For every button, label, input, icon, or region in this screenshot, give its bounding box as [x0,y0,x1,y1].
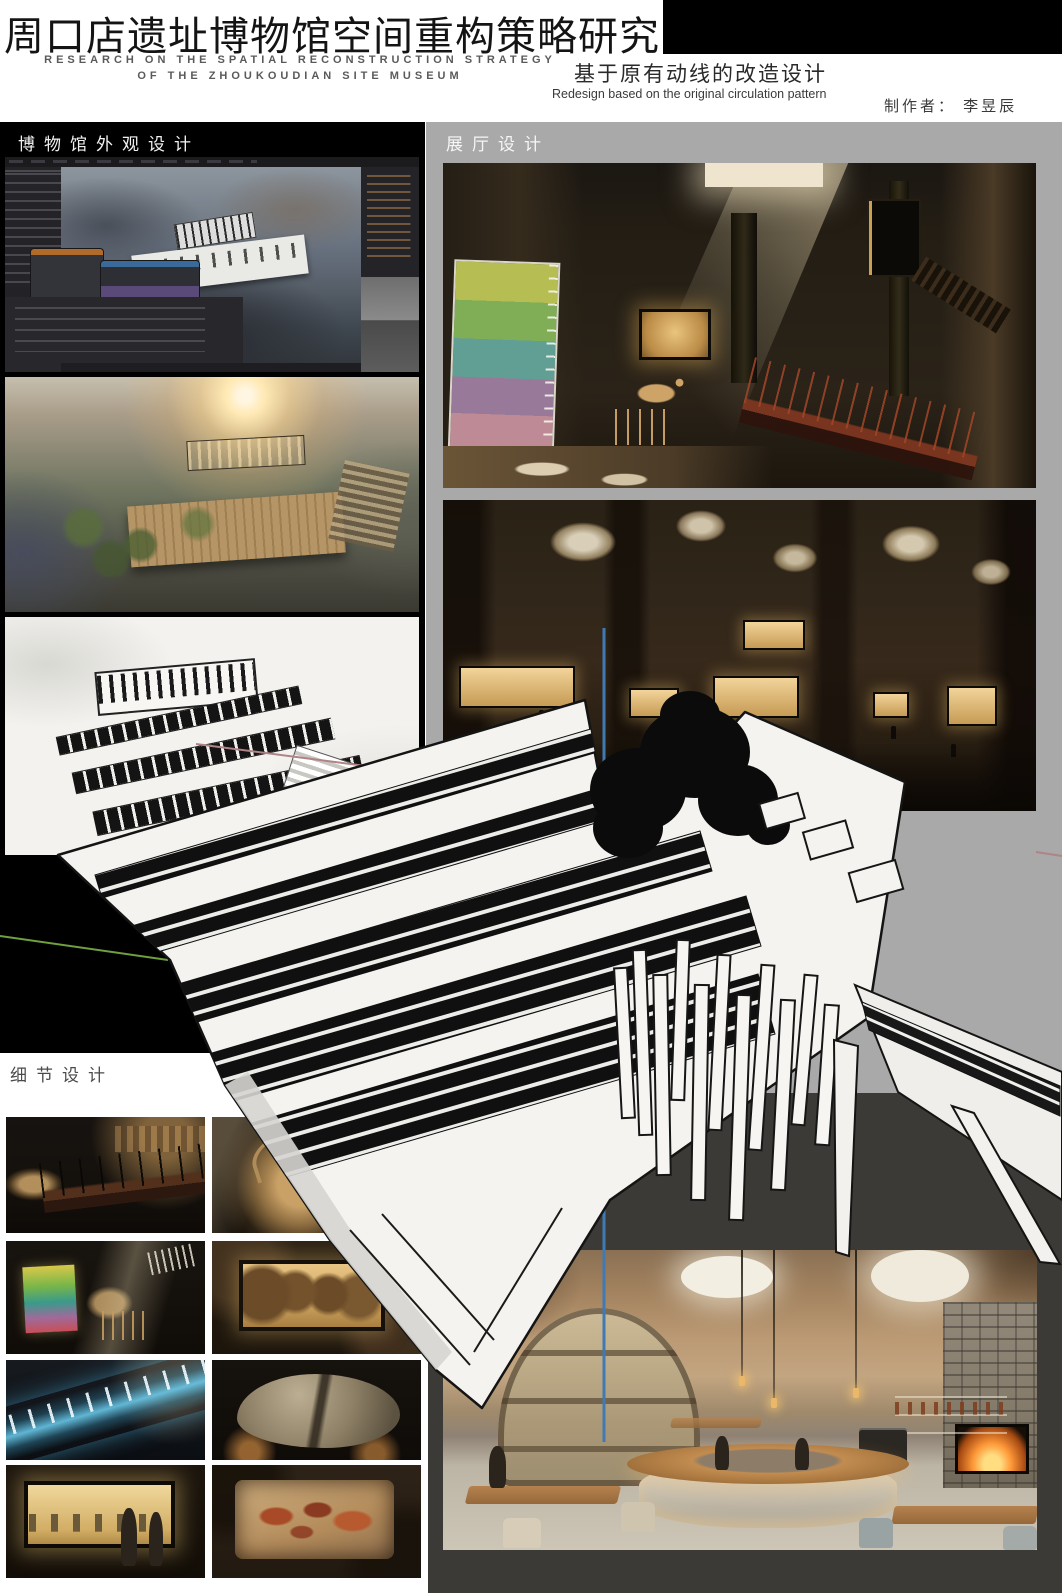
skull-display-case [459,666,575,708]
pendant-light [741,1250,743,1378]
blender-outliner-panel [361,167,419,277]
projected-evolution-timeline [6,1360,205,1460]
lit-display-case [639,309,711,360]
pendant-bulb [853,1388,859,1398]
excavation-bridge [39,1141,205,1227]
cave-painting-panel [235,1480,394,1559]
projected-art-wall [22,1265,77,1333]
blender-lower-panel [5,297,243,372]
deer-skeleton-legs [102,1311,146,1340]
pendant-bulb [739,1376,745,1386]
blender-preview-viewport [361,277,419,372]
cave-floor [443,743,1036,811]
dome-skylights [443,500,1036,640]
fossil-display-case [947,686,997,726]
render-greenery [38,506,266,577]
fossil-display-case [873,692,909,718]
detail-projection-deer-photo [6,1241,205,1354]
cafe-chair [1003,1526,1037,1550]
deer-skeleton-exhibit [609,369,695,445]
stratigraphy-map-banner [448,259,561,459]
blender-menubar [5,157,419,167]
cafe-table [670,1418,762,1428]
circular-bar-counter [627,1444,909,1484]
bar-shelves [895,1396,1007,1438]
detail-blue-timeline-photo [6,1360,205,1460]
header-black-bar [663,0,1062,54]
alcove-display-case [743,620,805,650]
section-label-exterior: 博物馆外观设计 [18,130,200,155]
figure-exhibition-hall-2 [443,500,1036,811]
detail-ash-heap-photo [212,1360,421,1460]
figure-cafe-render [443,1250,1037,1550]
creator-credit: 制作者： 李昱辰 [884,95,1017,116]
person-silhouette [715,1436,729,1470]
detail-cave-painting-photo [212,1465,421,1578]
visitor-figure [569,712,574,725]
person-silhouette [795,1438,809,1470]
upper-gallery-window [867,199,921,277]
visitor-figure [691,722,696,735]
detail-skull-case-photo [212,1241,421,1354]
antler [245,1120,329,1184]
section-label-hall: 展厅设计 [446,130,550,155]
cafe-skylight [681,1256,773,1298]
figure-exhibition-hall-1 [443,163,1036,488]
section-label-detail: 细节设计 [10,1061,114,1086]
render-hillside-stair [329,460,410,552]
figure-sunset-render [5,377,419,612]
page-subtitle-en: RESEARCH ON THE SPATIAL RECONSTRUCTION S… [0,52,600,84]
cafe-chair [503,1518,541,1548]
subtitle-line1: RESEARCH ON THE SPATIAL RECONSTRUCTION S… [0,52,600,68]
pendant-light [773,1250,775,1400]
visitor-figure [775,728,780,741]
blender-timeline-bar [61,363,361,372]
person-silhouette [149,1512,163,1566]
cafe-table [891,1506,1037,1524]
pendant-bulb [771,1398,777,1408]
person-silhouette [121,1508,137,1566]
detail-deer-skull-photo [212,1117,421,1233]
cafe-chair [859,1518,893,1548]
excavation-floor [443,446,773,488]
skylight-grille [147,1243,195,1274]
subtitle-line2: OF THE ZHOUKOUDIAN SITE MUSEUM [0,68,600,84]
detail-stone-tools-photo [6,1465,205,1578]
figure-blender-screenshot [5,157,419,372]
visitor-figure [539,710,544,723]
render-glass-pavilion [186,435,305,471]
cafe-table [465,1486,621,1504]
theme-title-en: Redesign based on the original circulati… [552,87,826,101]
poster: 周口店遗址博物馆空间重构策略研究 RESEARCH ON THE SPATIAL… [0,0,1062,1593]
skull-display-case [239,1260,385,1331]
figure-white-clay-model [5,617,419,855]
cafe-skylight [871,1250,969,1302]
fossil-display-case [629,688,679,718]
pendant-light [855,1250,857,1390]
theme-title-cn: 基于原有动线的改造设计 [574,58,827,88]
skylight-opening [705,163,823,187]
visitor-figure [891,726,896,739]
fossil-display-case [713,676,799,718]
detail-deer-bridge-photo [6,1117,205,1233]
cafe-chair [621,1502,655,1532]
ash-heap-rock [237,1374,400,1448]
person-silhouette [489,1446,506,1488]
concrete-pillar [731,213,757,383]
